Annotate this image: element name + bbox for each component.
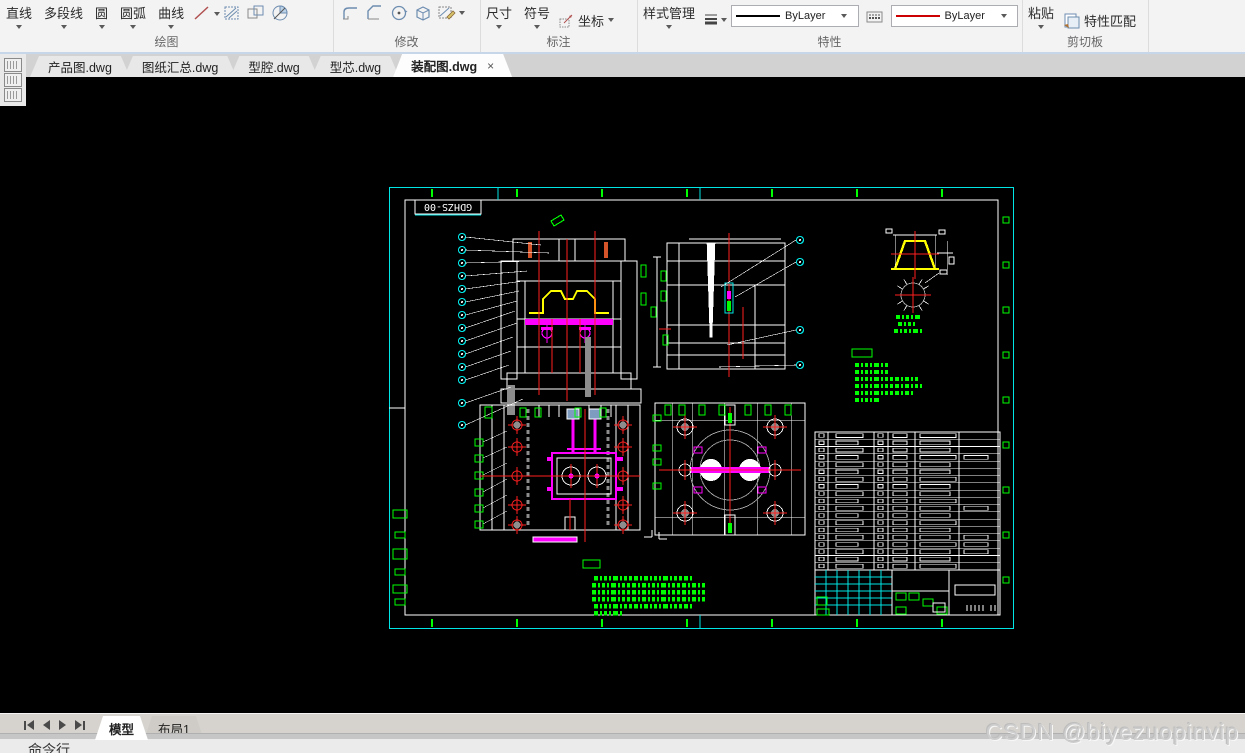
dimension-button[interactable]: 尺寸 (480, 2, 518, 29)
chevron-down-icon (1038, 25, 1044, 29)
chevron-down-icon (666, 25, 672, 29)
paste-button[interactable]: 粘贴 (1022, 2, 1060, 29)
sketch-line-icon[interactable] (192, 4, 212, 22)
linetype-sample (736, 15, 780, 17)
group-icon[interactable] (246, 4, 266, 22)
circle-button[interactable]: 圆 (89, 2, 114, 29)
view-fixed-half-plan (653, 403, 805, 539)
watermark: CSDN @biyezuopinvip (986, 719, 1239, 746)
hatch-icon[interactable] (222, 4, 242, 22)
coordinate-icon[interactable] (558, 12, 574, 30)
cad-application-window: 直线 多段线 圆 圆弧 曲线 绘图 (0, 0, 1245, 753)
linetype-dropdown[interactable]: ByLayer (731, 5, 858, 27)
chevron-down-icon (61, 25, 67, 29)
comb-mini-icon[interactable] (4, 88, 22, 102)
color-dropdown[interactable]: ByLayer (891, 5, 1018, 27)
chevron-down-icon (99, 25, 105, 29)
region-icon[interactable] (270, 4, 290, 22)
view-moving-half-plan (475, 405, 652, 542)
chevron-down-icon (168, 25, 174, 29)
file-tab-core[interactable]: 型芯.dwg (312, 56, 399, 77)
group-label-properties: 特性 (637, 33, 1022, 50)
coordinate-button[interactable]: 坐标 (576, 11, 616, 30)
chamfer-icon[interactable] (365, 4, 385, 22)
symbol-button[interactable]: 符号 (518, 2, 556, 29)
arc-button[interactable]: 圆弧 (114, 2, 152, 29)
group-label-draw: 绘图 (0, 33, 333, 50)
ribbon: 直线 多段线 圆 圆弧 曲线 绘图 (0, 0, 1245, 54)
drawing-canvas[interactable]: GDHZS-00 (0, 77, 1245, 713)
fillet-icon[interactable] (341, 4, 361, 22)
chevron-down-icon (130, 25, 136, 29)
ribbon-group-properties: 样式管理 ByLayer ByLayer 特性 (637, 0, 1023, 52)
drawing-frame (389, 187, 1014, 629)
next-tab-button[interactable] (59, 720, 66, 730)
chevron-down-icon[interactable] (214, 12, 220, 16)
first-tab-button[interactable] (24, 720, 34, 730)
group-label-modify: 修改 (333, 33, 480, 50)
view-main-section (459, 215, 647, 429)
match-properties-icon[interactable] (1062, 12, 1082, 30)
view-side-section (651, 233, 804, 377)
lineweight-icon[interactable] (703, 10, 719, 28)
match-properties-button[interactable]: 特性匹配 (1084, 11, 1136, 30)
bom-table-and-title-block (815, 432, 1000, 615)
chevron-down-icon[interactable] (459, 11, 465, 15)
chevron-down-icon (608, 18, 614, 22)
assembly-drawing: GDHZS-00 (389, 187, 1014, 629)
3d-box-icon[interactable] (413, 4, 433, 22)
style-manager-button[interactable]: 样式管理 (637, 2, 701, 29)
file-tab-cavity[interactable]: 型腔.dwg (230, 56, 317, 77)
file-tab-sheet-summary[interactable]: 图纸汇总.dwg (124, 56, 236, 77)
last-tab-button[interactable] (75, 720, 85, 730)
drawing-number-label: GDHZS-00 (424, 201, 472, 212)
ribbon-group-draw: 直线 多段线 圆 圆弧 曲线 绘图 (0, 0, 334, 52)
rotate-icon[interactable] (389, 4, 409, 22)
paste-mini-icon[interactable] (4, 58, 22, 72)
chevron-down-icon (496, 25, 502, 29)
model-tab[interactable]: 模型 (95, 716, 148, 740)
command-line-label: 命令行 (28, 740, 70, 753)
tech-note-block-right (852, 349, 922, 402)
side-tool-strip (0, 54, 26, 106)
file-tab-product[interactable]: 产品图.dwg (30, 56, 130, 77)
chevron-down-icon (16, 25, 22, 29)
chevron-down-icon (1001, 14, 1007, 18)
color-sample (896, 15, 940, 17)
chevron-down-icon (534, 25, 540, 29)
ribbon-group-clipboard: 粘贴 特性匹配 剪切板 (1022, 0, 1149, 52)
lineweight-settings-icon[interactable] (865, 8, 885, 26)
file-tab-assembly[interactable]: 装配图.dwg× (393, 54, 512, 77)
chevron-down-icon[interactable] (721, 18, 727, 22)
tech-note-block-bottom (583, 560, 705, 616)
group-label-clipboard: 剪切板 (1022, 33, 1148, 50)
polyline-button[interactable]: 多段线 (38, 2, 89, 29)
ribbon-group-modify: 修改 (333, 0, 481, 52)
prev-tab-button[interactable] (43, 720, 50, 730)
spline-button[interactable]: 曲线 (152, 2, 190, 29)
close-icon[interactable]: × (487, 59, 494, 73)
edit-hatch-icon[interactable] (437, 4, 457, 22)
chevron-down-icon (841, 14, 847, 18)
pattern-mini-icon[interactable] (4, 73, 22, 87)
file-tabbar: 产品图.dwg 图纸汇总.dwg 型腔.dwg 型芯.dwg 装配图.dwg× (0, 54, 1245, 77)
group-label-annotate: 标注 (480, 33, 637, 50)
ribbon-group-annotate: 尺寸 符号 坐标 标注 (480, 0, 638, 52)
line-button[interactable]: 直线 (0, 2, 38, 29)
view-part-detail (886, 229, 954, 333)
